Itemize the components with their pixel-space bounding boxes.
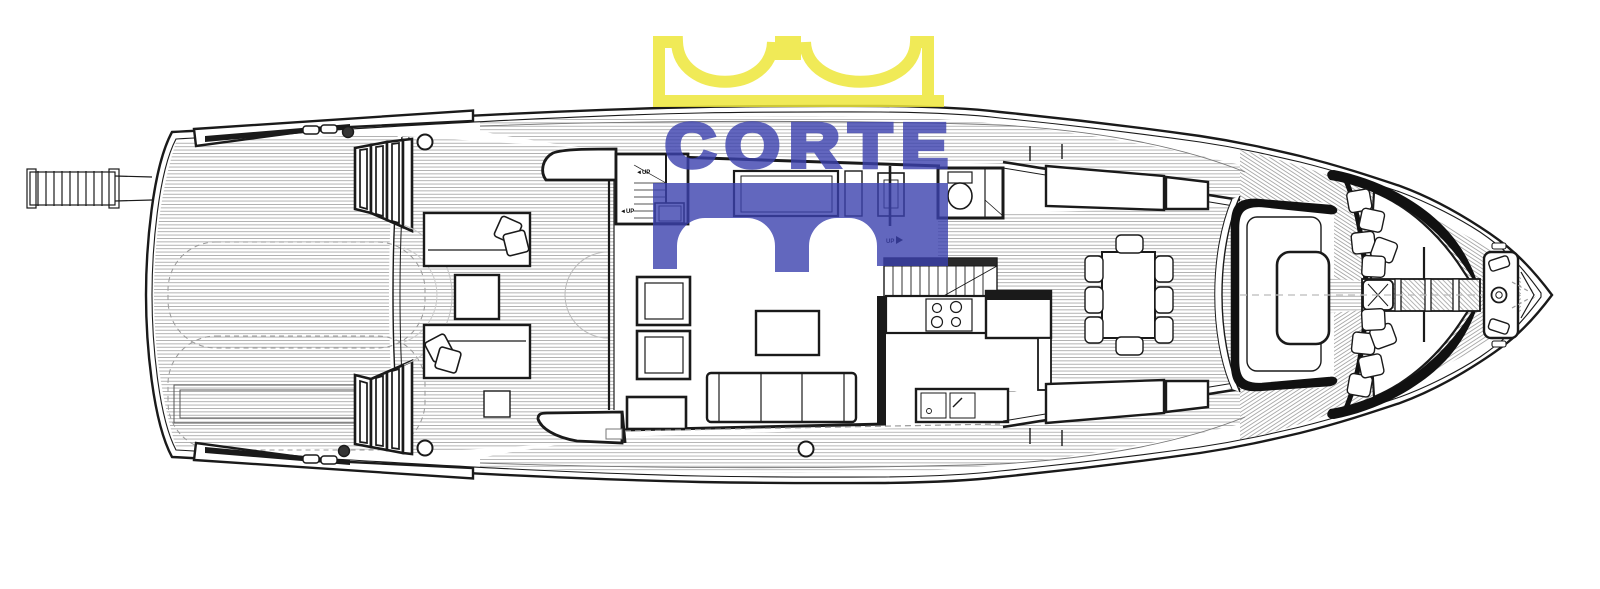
svg-text:CORTE: CORTE bbox=[665, 112, 957, 181]
svg-text:◄UP: ◄UP bbox=[636, 170, 650, 176]
svg-text:◄UP: ◄UP bbox=[620, 209, 634, 215]
